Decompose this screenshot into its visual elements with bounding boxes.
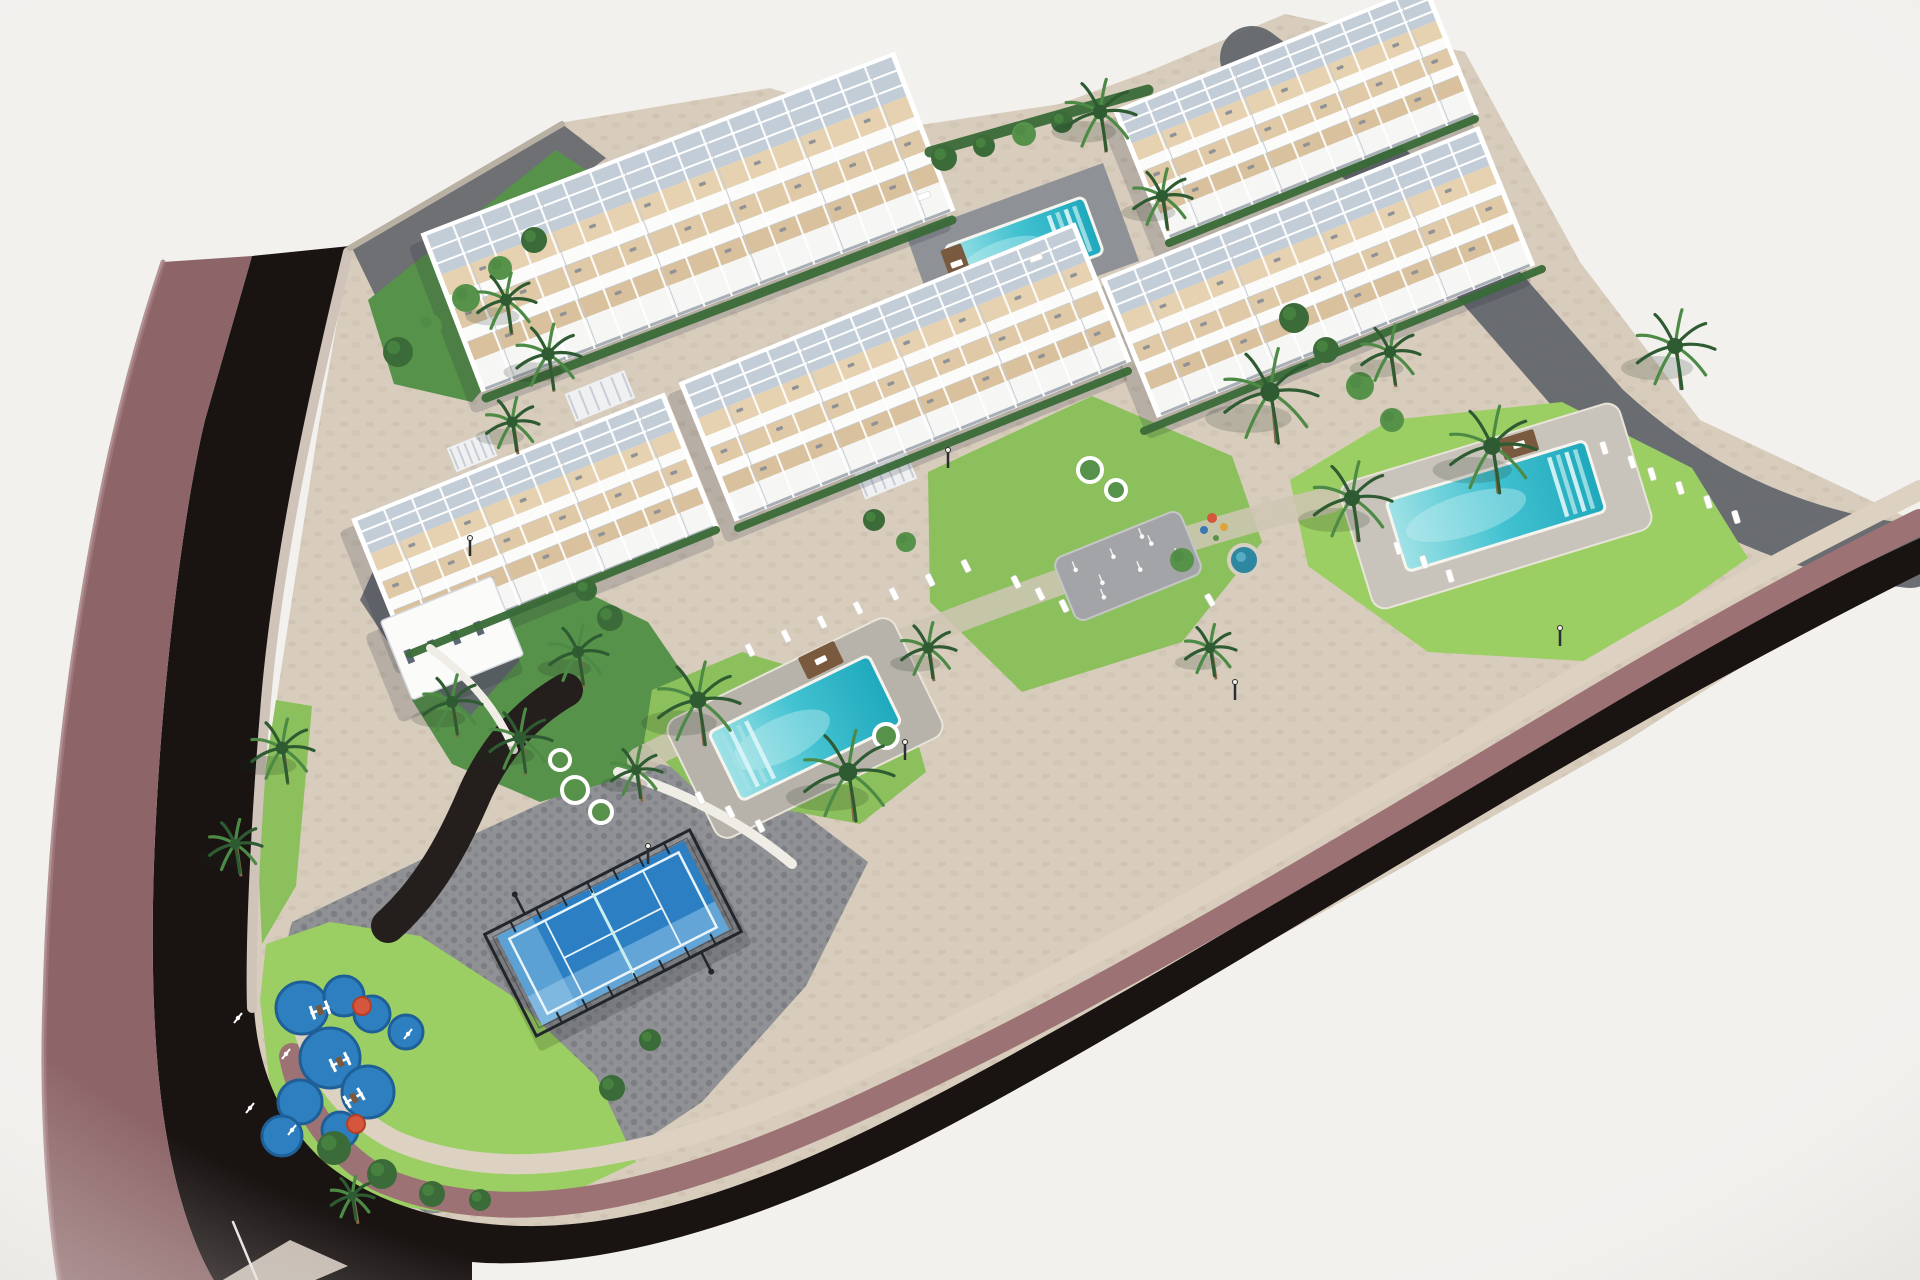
render-figure xyxy=(0,0,1920,1280)
planter xyxy=(1106,480,1126,500)
mini-play-2 xyxy=(1220,523,1228,531)
safety-surface xyxy=(262,1116,302,1156)
planter xyxy=(1078,458,1102,482)
safety-surface xyxy=(342,1066,394,1118)
aerial-site-render xyxy=(0,0,1920,1280)
planter xyxy=(874,724,898,748)
safety-surface xyxy=(389,1015,423,1049)
planter xyxy=(562,777,588,803)
play-pad-red xyxy=(353,997,371,1015)
mini-play-3 xyxy=(1200,526,1208,534)
mini-play-4 xyxy=(1213,535,1219,541)
planter xyxy=(590,801,612,823)
planter xyxy=(550,750,570,770)
play-pad-red xyxy=(347,1115,365,1133)
mini-play-1 xyxy=(1207,513,1217,523)
